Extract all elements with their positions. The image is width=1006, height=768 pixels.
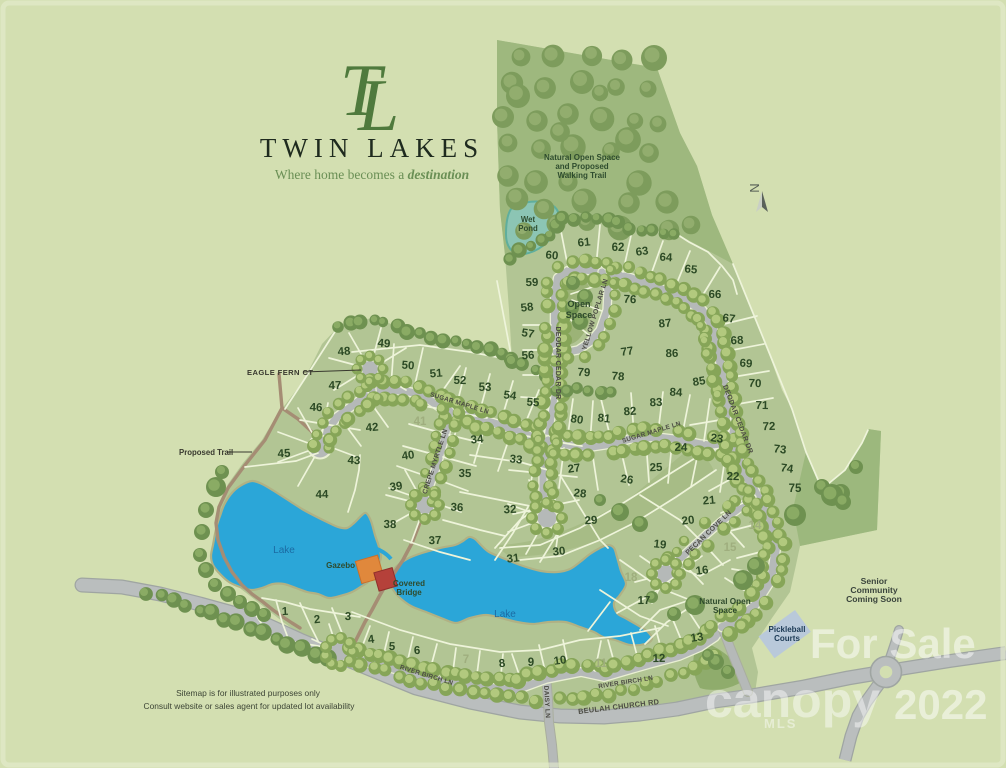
svg-text:14: 14 bbox=[749, 520, 762, 532]
svg-text:37: 37 bbox=[428, 535, 441, 547]
svg-text:20: 20 bbox=[681, 514, 695, 527]
svg-text:Space: Space bbox=[566, 310, 593, 320]
svg-text:Coming Soon: Coming Soon bbox=[846, 594, 902, 604]
svg-text:36: 36 bbox=[450, 502, 463, 515]
svg-text:26: 26 bbox=[620, 473, 635, 487]
svg-text:34: 34 bbox=[470, 433, 485, 446]
svg-text:58: 58 bbox=[520, 301, 535, 315]
svg-text:17: 17 bbox=[638, 595, 651, 607]
svg-text:2022: 2022 bbox=[894, 681, 987, 728]
svg-text:40: 40 bbox=[401, 449, 415, 463]
svg-text:52: 52 bbox=[453, 375, 466, 387]
svg-text:54: 54 bbox=[503, 389, 518, 403]
svg-text:50: 50 bbox=[401, 360, 415, 373]
svg-text:44: 44 bbox=[316, 489, 330, 501]
svg-text:61: 61 bbox=[577, 236, 592, 249]
svg-text:69: 69 bbox=[739, 358, 753, 371]
svg-text:80: 80 bbox=[570, 413, 585, 427]
svg-text:79: 79 bbox=[577, 367, 590, 380]
svg-text:67: 67 bbox=[722, 312, 736, 325]
svg-text:32: 32 bbox=[503, 504, 516, 517]
svg-text:56: 56 bbox=[521, 350, 535, 363]
svg-text:24: 24 bbox=[674, 442, 688, 454]
svg-text:Sitemap is for illustrated pur: Sitemap is for illustrated purposes only bbox=[176, 688, 321, 698]
svg-text:38: 38 bbox=[383, 519, 397, 531]
svg-text:76: 76 bbox=[623, 294, 636, 307]
svg-text:19: 19 bbox=[653, 538, 667, 551]
svg-text:2: 2 bbox=[313, 614, 321, 627]
svg-text:TWIN LAKES: TWIN LAKES bbox=[260, 133, 484, 163]
svg-text:15: 15 bbox=[724, 542, 737, 554]
svg-text:46: 46 bbox=[309, 402, 322, 414]
svg-text:64: 64 bbox=[659, 252, 673, 265]
svg-text:47: 47 bbox=[329, 380, 342, 392]
svg-text:Natural Open: Natural Open bbox=[699, 597, 750, 606]
svg-text:68: 68 bbox=[730, 335, 744, 348]
svg-text:55: 55 bbox=[526, 397, 540, 410]
svg-text:11: 11 bbox=[595, 658, 608, 670]
svg-text:DEODAR CEDAR DR: DEODAR CEDAR DR bbox=[554, 327, 561, 400]
svg-text:MLS: MLS bbox=[764, 716, 797, 731]
svg-text:Covered: Covered bbox=[393, 579, 425, 588]
svg-text:EAGLE FERN CT: EAGLE FERN CT bbox=[247, 368, 313, 377]
svg-text:Courts: Courts bbox=[774, 634, 800, 643]
svg-text:48: 48 bbox=[337, 346, 351, 359]
svg-text:Wet: Wet bbox=[521, 215, 536, 224]
svg-text:5: 5 bbox=[389, 641, 396, 653]
svg-text:42: 42 bbox=[365, 421, 379, 434]
svg-text:13: 13 bbox=[690, 631, 704, 645]
svg-text:23: 23 bbox=[710, 432, 724, 446]
svg-text:Lake: Lake bbox=[273, 545, 295, 556]
svg-text:78: 78 bbox=[611, 371, 625, 384]
svg-text:25: 25 bbox=[649, 462, 663, 474]
svg-text:3: 3 bbox=[344, 611, 351, 623]
svg-text:65: 65 bbox=[684, 263, 698, 276]
svg-text:82: 82 bbox=[623, 406, 637, 419]
svg-text:86: 86 bbox=[666, 348, 679, 360]
svg-text:66: 66 bbox=[708, 289, 721, 301]
svg-text:85: 85 bbox=[692, 375, 707, 389]
svg-text:N: N bbox=[747, 183, 762, 192]
svg-text:Walking Trail: Walking Trail bbox=[557, 171, 606, 180]
svg-text:Lake: Lake bbox=[494, 609, 516, 620]
svg-text:22: 22 bbox=[726, 471, 739, 483]
svg-text:60: 60 bbox=[545, 249, 559, 262]
svg-text:29: 29 bbox=[584, 515, 598, 528]
svg-text:28: 28 bbox=[573, 487, 588, 500]
svg-text:31: 31 bbox=[506, 552, 521, 566]
svg-text:Where home becomes a destinati: Where home becomes a destination bbox=[275, 167, 469, 182]
svg-text:45: 45 bbox=[277, 448, 291, 461]
svg-text:18: 18 bbox=[625, 572, 638, 584]
svg-text:Pickleball: Pickleball bbox=[769, 625, 806, 634]
svg-text:Open: Open bbox=[567, 299, 590, 309]
svg-text:Gazebo: Gazebo bbox=[326, 561, 355, 570]
svg-text:49: 49 bbox=[377, 337, 391, 350]
svg-text:and Proposed: and Proposed bbox=[555, 162, 608, 171]
svg-text:75: 75 bbox=[789, 483, 802, 495]
svg-text:70: 70 bbox=[748, 378, 761, 390]
svg-text:39: 39 bbox=[389, 480, 403, 494]
svg-text:1: 1 bbox=[282, 606, 290, 618]
svg-text:33: 33 bbox=[509, 453, 523, 466]
svg-text:Bridge: Bridge bbox=[396, 588, 422, 597]
svg-text:43: 43 bbox=[347, 455, 360, 468]
svg-text:51: 51 bbox=[429, 367, 443, 380]
svg-text:73: 73 bbox=[773, 443, 787, 456]
svg-text:10: 10 bbox=[553, 654, 567, 668]
svg-text:83: 83 bbox=[649, 397, 662, 409]
svg-text:16: 16 bbox=[695, 564, 709, 577]
svg-text:87: 87 bbox=[658, 317, 672, 330]
svg-text:21: 21 bbox=[702, 494, 716, 507]
svg-text:Space: Space bbox=[713, 606, 738, 615]
svg-text:7: 7 bbox=[463, 654, 469, 666]
svg-text:77: 77 bbox=[620, 345, 634, 359]
svg-text:12: 12 bbox=[653, 653, 666, 665]
svg-text:35: 35 bbox=[458, 468, 472, 480]
svg-text:Pond: Pond bbox=[518, 224, 538, 233]
svg-text:84: 84 bbox=[669, 387, 683, 400]
svg-text:72: 72 bbox=[763, 421, 776, 433]
svg-text:6: 6 bbox=[414, 645, 421, 657]
svg-text:71: 71 bbox=[755, 400, 769, 412]
svg-text:62: 62 bbox=[612, 242, 625, 254]
svg-text:9: 9 bbox=[528, 657, 534, 669]
svg-text:Natural Open Space: Natural Open Space bbox=[544, 153, 621, 162]
svg-text:Consult website or sales agent: Consult website or sales agent for updat… bbox=[144, 701, 356, 711]
svg-text:41: 41 bbox=[414, 416, 427, 428]
svg-text:63: 63 bbox=[635, 245, 649, 259]
svg-text:81: 81 bbox=[597, 412, 612, 425]
svg-text:57: 57 bbox=[521, 327, 536, 341]
svg-text:53: 53 bbox=[479, 382, 492, 394]
svg-text:Proposed Trail: Proposed Trail bbox=[179, 448, 233, 457]
svg-text:27: 27 bbox=[567, 462, 581, 476]
svg-text:30: 30 bbox=[552, 545, 566, 558]
svg-text:59: 59 bbox=[526, 277, 539, 289]
svg-text:For Sale: For Sale bbox=[810, 620, 976, 667]
svg-text:74: 74 bbox=[780, 462, 795, 476]
